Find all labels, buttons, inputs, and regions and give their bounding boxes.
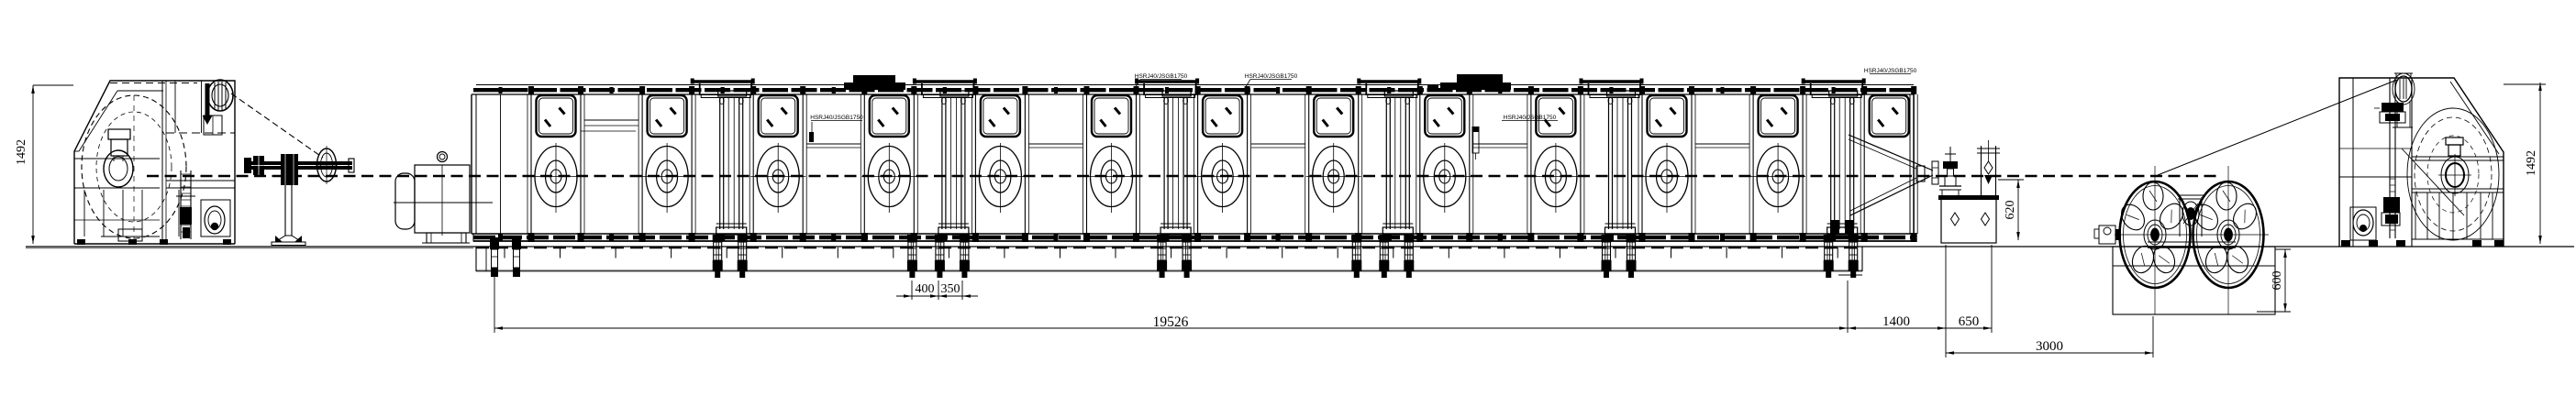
svg-text:HSRJ40/JSGB1750: HSRJ40/JSGB1750 bbox=[1135, 73, 1188, 80]
svg-text:3000: 3000 bbox=[2036, 339, 2063, 354]
svg-text:1400: 1400 bbox=[1882, 314, 1910, 329]
svg-text:650: 650 bbox=[1959, 314, 1980, 329]
svg-text:HSRJ40/JSGB1750: HSRJ40/JSGB1750 bbox=[810, 115, 863, 121]
svg-text:HSRJ40/JSGB1750: HSRJ40/JSGB1750 bbox=[1504, 115, 1557, 121]
svg-text:620: 620 bbox=[2004, 201, 2017, 220]
svg-text:400: 400 bbox=[916, 282, 935, 296]
svg-text:19526: 19526 bbox=[1153, 314, 1189, 330]
svg-text:600: 600 bbox=[2271, 271, 2284, 291]
svg-text:HSRJ40/JSGB1750: HSRJ40/JSGB1750 bbox=[1245, 73, 1298, 80]
svg-text:350: 350 bbox=[941, 282, 960, 296]
svg-text:1492: 1492 bbox=[2525, 150, 2538, 176]
svg-text:HSRJ40/JSGB1750: HSRJ40/JSGB1750 bbox=[1864, 68, 1917, 74]
svg-text:1492: 1492 bbox=[15, 139, 28, 165]
